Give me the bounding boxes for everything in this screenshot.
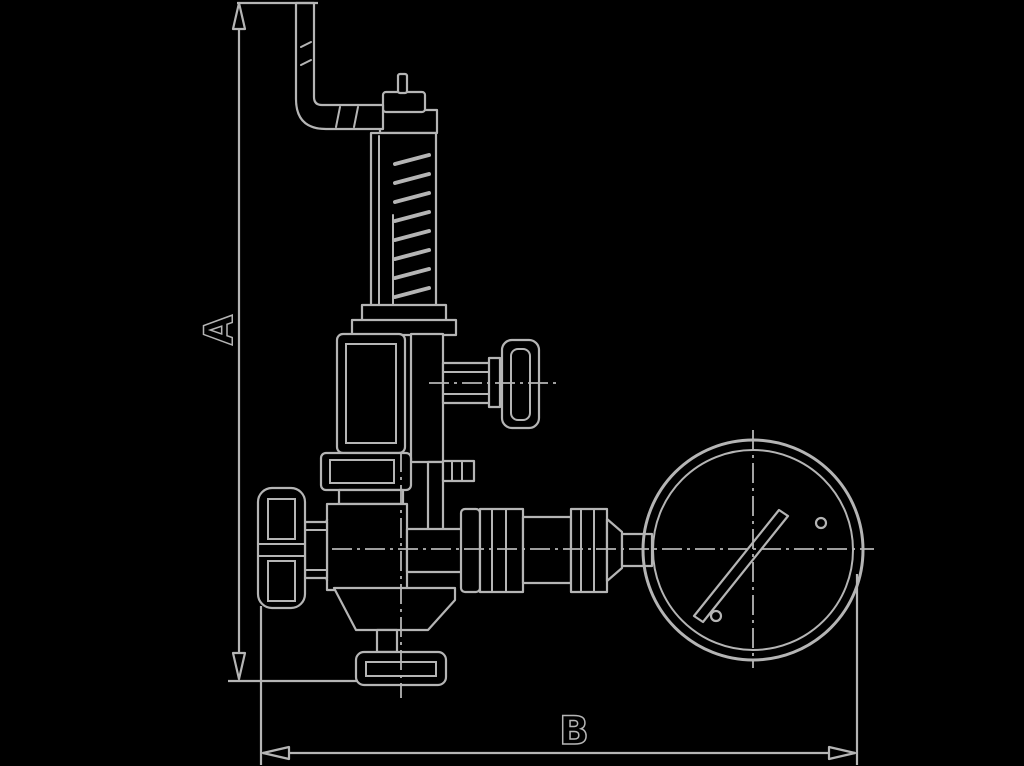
arrowhead-left <box>263 747 289 759</box>
gauge-pipe <box>461 509 652 592</box>
spring-column <box>371 133 436 308</box>
gauge-needle <box>694 510 788 622</box>
dimension-b-label: B <box>559 709 589 754</box>
outlet-skirt <box>334 588 455 652</box>
side-t-handle <box>443 340 539 428</box>
drawing-canvas: A B <box>0 0 1024 766</box>
valve-dimension-drawing: A B <box>0 0 1024 766</box>
arrowhead-up <box>233 3 245 29</box>
gauge-stop-dot <box>711 611 721 621</box>
gland-flange <box>321 453 474 504</box>
spindle-nut <box>380 74 437 133</box>
column-base-flange <box>352 305 456 335</box>
arrowhead-right <box>829 747 855 759</box>
gauge-pin-dot <box>816 518 826 528</box>
lever-arm <box>296 3 383 129</box>
dimension-a-label: A <box>197 315 242 345</box>
arrowhead-down <box>233 653 245 679</box>
handwheel <box>258 488 305 608</box>
